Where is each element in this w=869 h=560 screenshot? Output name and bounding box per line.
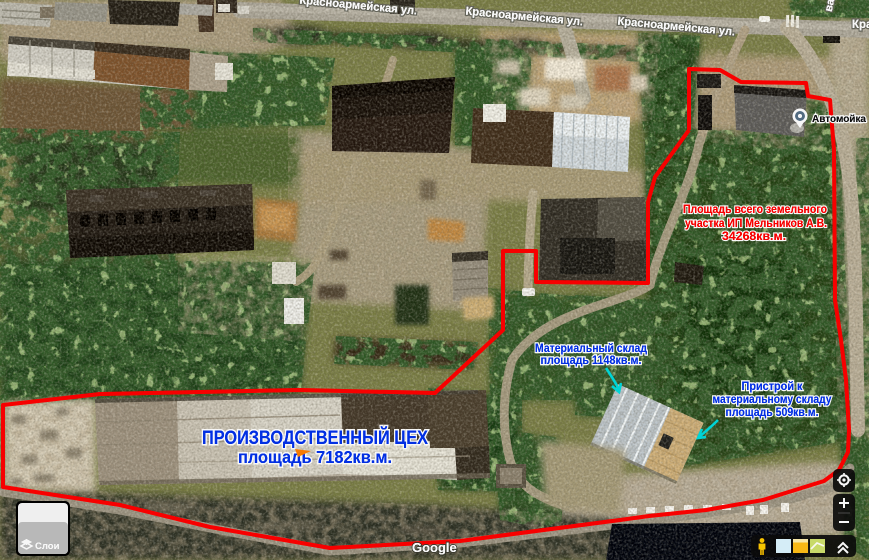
svg-text:Автомойка: Автомойка	[812, 113, 866, 125]
svg-text:материальному складу: материальному складу	[713, 394, 833, 406]
svg-text:Google: Google	[412, 540, 457, 555]
svg-text:Слои: Слои	[35, 541, 60, 552]
svg-text:площадь 509кв.м.: площадь 509кв.м.	[726, 407, 819, 419]
svg-text:Пристрой к: Пристрой к	[742, 381, 803, 393]
svg-text:площадь 7182кв.м.: площадь 7182кв.м.	[238, 447, 392, 467]
svg-text:Площадь всего земельного: Площадь всего земельного	[683, 204, 827, 216]
svg-text:Материальный склад: Материальный склад	[535, 343, 648, 355]
svg-text:площадь 1148кв.м.: площадь 1148кв.м.	[541, 355, 642, 367]
svg-text:участка ИП Мельников А.В.: участка ИП Мельников А.В.	[685, 218, 827, 230]
svg-text:Красн: Красн	[852, 19, 869, 31]
svg-text:34268кв.м.: 34268кв.м.	[722, 231, 786, 243]
svg-text:ПРОИЗВОДСТВЕННЫЙ ЦЕХ: ПРОИЗВОДСТВЕННЫЙ ЦЕХ	[202, 427, 428, 449]
